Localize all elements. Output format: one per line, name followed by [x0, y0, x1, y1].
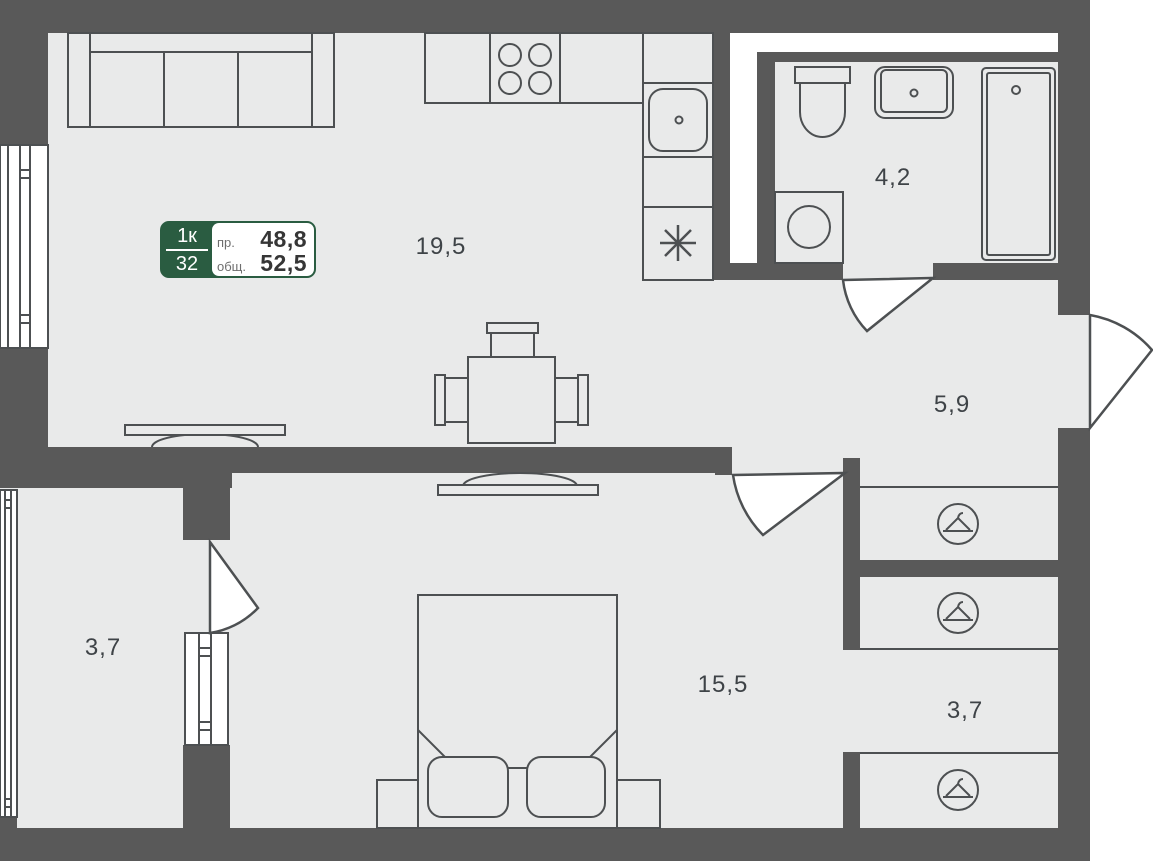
wall-right-upper — [1058, 0, 1090, 315]
chair-top-seat — [491, 333, 534, 357]
chair-right-seat — [555, 378, 578, 422]
dining-table — [468, 357, 555, 443]
badge-floor-number: 32 — [176, 252, 198, 276]
chair-right — [578, 375, 588, 425]
room-label-kitchen-living: 19,5 — [391, 232, 491, 262]
fridge-asterisk-icon — [660, 225, 696, 261]
badge-total-area-row: общ. 52,5 — [217, 250, 307, 274]
chair-left-seat — [445, 378, 468, 422]
sofa — [68, 33, 334, 127]
bed — [418, 595, 617, 828]
badge-living-area-row: пр. 48,8 — [217, 226, 307, 250]
wall-kitchen-column — [713, 33, 730, 280]
total-area-value: 52,5 — [260, 250, 307, 277]
wall-bedroom-hallway-lower — [843, 752, 860, 830]
pillow-right — [527, 757, 605, 817]
living-area-label: пр. — [217, 235, 235, 250]
kitchen-counter — [425, 33, 643, 103]
floor-plan-drawing — [0, 0, 1153, 861]
tv-screen — [125, 425, 285, 435]
wall-balcony-separator-upper — [183, 473, 230, 540]
washing-machine — [775, 192, 843, 263]
living-room-window — [0, 145, 48, 348]
toilet — [795, 67, 850, 137]
room-label-wardrobe: 3,7 — [915, 696, 1015, 726]
wall-step — [715, 460, 732, 475]
balcony-glazing-window — [0, 490, 17, 817]
room-label-balcony: 3,7 — [53, 633, 153, 663]
chair-left — [435, 375, 445, 425]
wall-bedroom-hallway-upper — [843, 458, 860, 650]
shaft-vertical — [730, 52, 757, 263]
room-label-hallway: 5,9 — [902, 390, 1002, 420]
entrance-door-swing — [1090, 315, 1152, 428]
bathroom-sink — [875, 67, 953, 118]
room-label-bedroom: 15,5 — [673, 670, 773, 700]
bathtub — [982, 68, 1055, 260]
living-area-value: 48,8 — [260, 226, 307, 253]
wall-bathroom-bottom-right — [933, 263, 1058, 280]
wall-left-upper — [0, 0, 48, 148]
nightstand-left — [377, 780, 418, 828]
room-label-bathroom: 4,2 — [843, 163, 943, 193]
wall-bathroom-top — [757, 52, 1058, 62]
kitchen-sink — [649, 89, 707, 151]
shaft-horizontal — [730, 33, 1058, 52]
bedroom-balcony-window — [185, 633, 228, 745]
chair-top — [487, 323, 538, 333]
wall-right-lower — [1058, 428, 1090, 861]
wall-bathroom-left — [757, 52, 775, 280]
floor-plan: 19,5 4,2 5,9 3,7 15,5 3,7 1к 32 пр. 48,8… — [0, 0, 1153, 861]
badge-divider — [166, 249, 208, 251]
wall-bottom — [0, 828, 1090, 861]
apartment-info-badge: 1к 32 пр. 48,8 общ. 52,5 — [160, 221, 316, 278]
pillow-left — [428, 757, 508, 817]
nightstand-right — [617, 780, 660, 828]
badge-rooms-count: 1к — [177, 224, 197, 248]
total-area-label: общ. — [217, 259, 246, 274]
wall-bathroom-bottom-left — [730, 263, 843, 280]
badge-right-panel: пр. 48,8 общ. 52,5 — [212, 223, 314, 276]
wall-top — [0, 0, 1090, 33]
wall-balcony-separator-lower — [183, 745, 230, 830]
badge-left-panel: 1к 32 — [162, 223, 212, 276]
kitchen-column — [643, 33, 713, 280]
wall-wardrobe-separator — [843, 560, 1058, 577]
tv-screen — [438, 485, 598, 495]
